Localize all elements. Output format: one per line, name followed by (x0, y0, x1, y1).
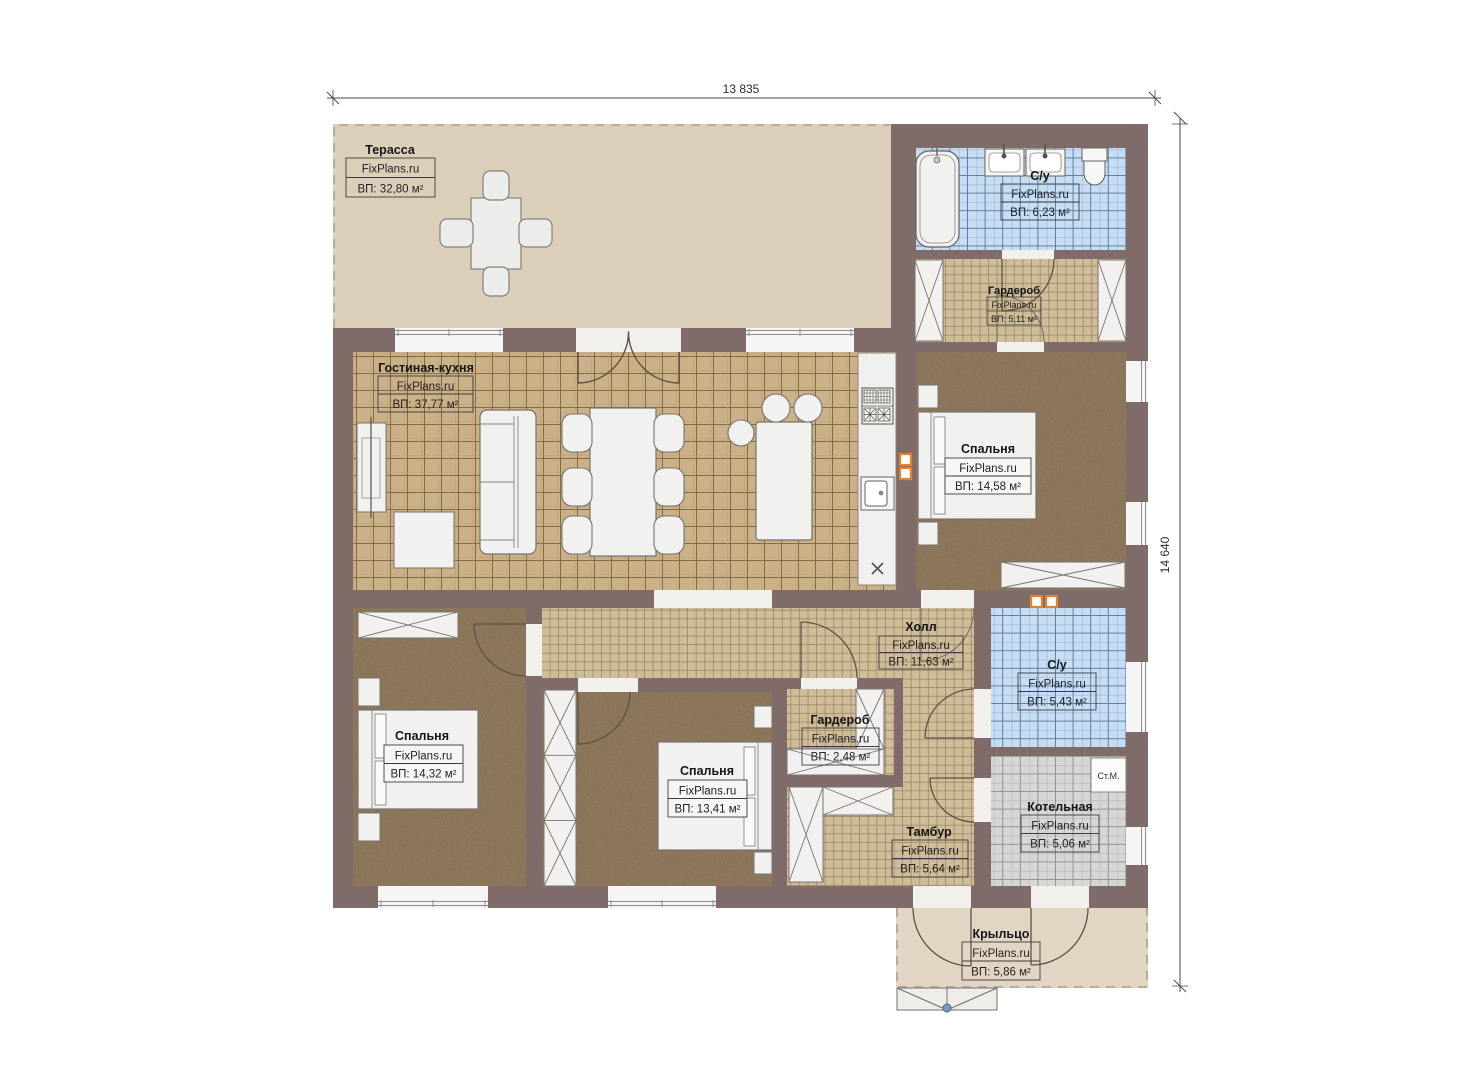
svg-text:FixPlans.ru: FixPlans.ru (1028, 679, 1086, 691)
svg-text:Спальня: Спальня (395, 729, 449, 743)
svg-text:ВП: 14,32 м²: ВП: 14,32 м² (390, 769, 456, 781)
svg-text:14 640: 14 640 (1158, 536, 1172, 573)
svg-text:FixPlans.ru: FixPlans.ru (901, 846, 959, 858)
svg-text:ВП: 14,58 м²: ВП: 14,58 м² (955, 481, 1021, 493)
svg-text:ВП: 32,80 м²: ВП: 32,80 м² (357, 184, 423, 196)
svg-text:ВП: 5,11 м²: ВП: 5,11 м² (991, 314, 1037, 324)
svg-text:FixPlans.ru: FixPlans.ru (812, 734, 870, 746)
svg-text:Гардероб: Гардероб (988, 285, 1040, 297)
svg-text:FixPlans.ru: FixPlans.ru (959, 463, 1017, 475)
svg-text:Спальня: Спальня (680, 764, 734, 778)
svg-text:FixPlans.ru: FixPlans.ru (395, 751, 453, 763)
svg-text:С/у: С/у (1047, 658, 1067, 672)
svg-text:FixPlans.ru: FixPlans.ru (1011, 189, 1069, 201)
svg-text:Тамбур: Тамбур (906, 825, 952, 839)
svg-text:ВП: 13,41 м²: ВП: 13,41 м² (674, 804, 740, 816)
svg-text:ВП: 37,77 м²: ВП: 37,77 м² (392, 399, 458, 411)
svg-text:Гостиная-кухня: Гостиная-кухня (378, 361, 474, 375)
svg-text:FixPlans.ru: FixPlans.ru (362, 164, 420, 176)
svg-text:FixPlans.ru: FixPlans.ru (972, 948, 1030, 960)
svg-text:Крыльцо: Крыльцо (973, 927, 1030, 941)
svg-text:Гардероб: Гардероб (810, 713, 869, 727)
svg-text:Холл: Холл (905, 620, 936, 634)
svg-text:FixPlans.ru: FixPlans.ru (679, 786, 737, 798)
svg-text:ВП: 6,23 м²: ВП: 6,23 м² (1010, 207, 1070, 219)
svg-text:ВП: 2,48 м²: ВП: 2,48 м² (811, 752, 871, 764)
svg-text:13 835: 13 835 (723, 82, 760, 96)
svg-text:Ст.М.: Ст.М. (1097, 771, 1119, 781)
svg-text:С/у: С/у (1030, 169, 1050, 183)
svg-text:FixPlans.ru: FixPlans.ru (991, 300, 1036, 310)
svg-text:Спальня: Спальня (961, 442, 1015, 456)
svg-text:ВП: 5,86 м²: ВП: 5,86 м² (971, 967, 1031, 979)
svg-text:ВП: 5,43 м²: ВП: 5,43 м² (1027, 697, 1087, 709)
svg-text:Котельная: Котельная (1027, 800, 1092, 814)
svg-text:FixPlans.ru: FixPlans.ru (892, 640, 950, 652)
svg-text:Терасса: Терасса (365, 143, 416, 157)
svg-text:FixPlans.ru: FixPlans.ru (1031, 821, 1089, 833)
svg-text:FixPlans.ru: FixPlans.ru (397, 381, 455, 393)
svg-text:ВП: 5,06 м²: ВП: 5,06 м² (1030, 839, 1090, 851)
svg-text:ВП: 5,64 м²: ВП: 5,64 м² (900, 864, 960, 876)
svg-text:ВП: 11,63 м²: ВП: 11,63 м² (888, 657, 953, 669)
